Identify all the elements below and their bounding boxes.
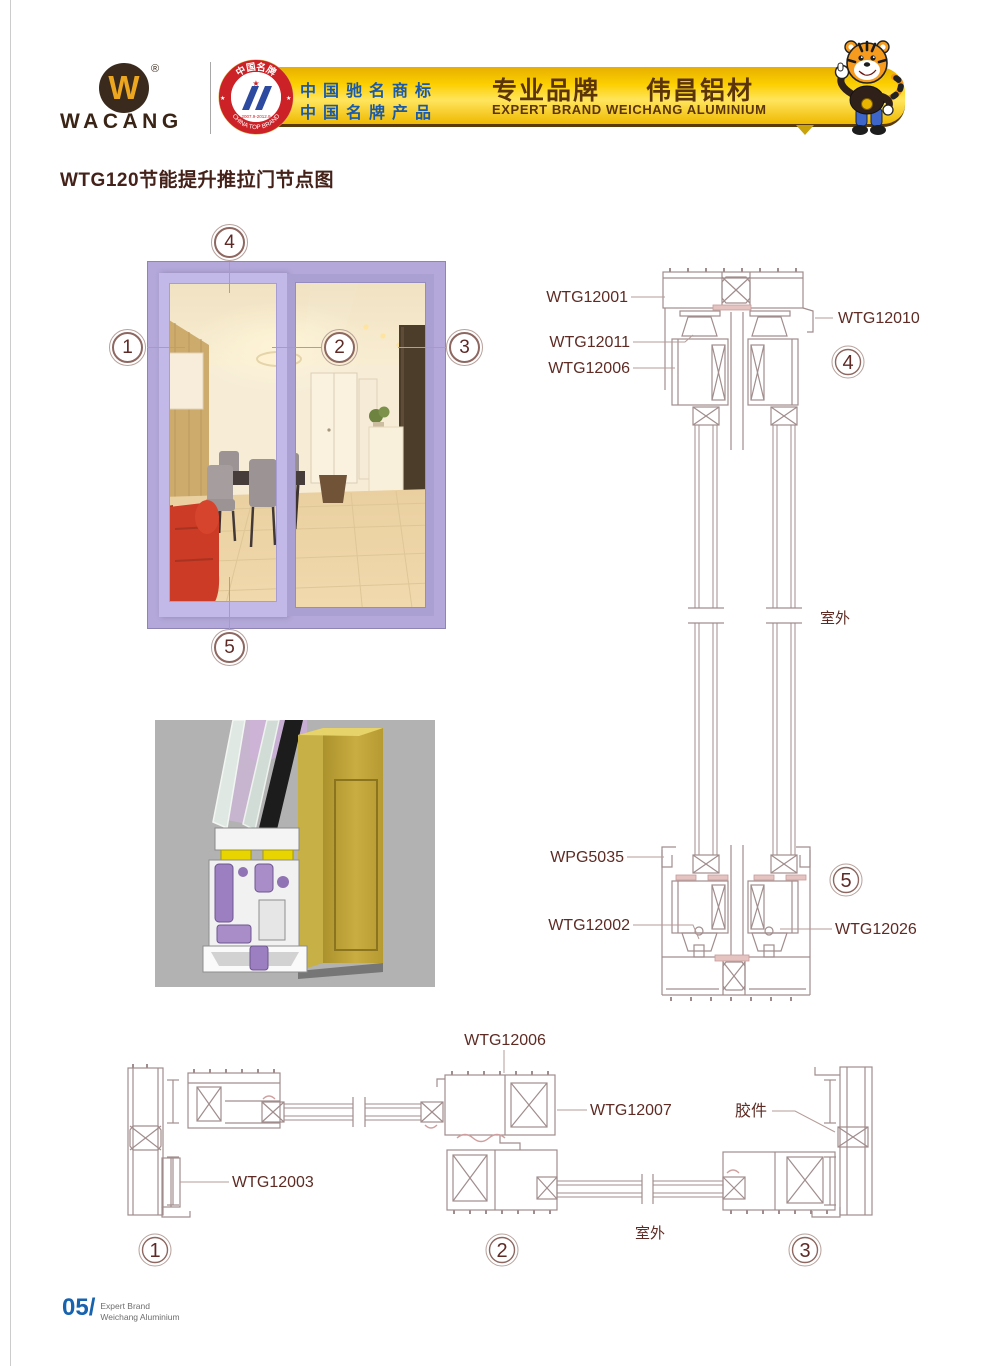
svg-text:1: 1 <box>149 1240 160 1262</box>
footer: 05/ Expert Brand Weichang Aluminium <box>62 1296 180 1323</box>
profile-3d-render <box>155 720 435 987</box>
label-wtg12006: WTG12006 <box>548 360 630 377</box>
door-right-sash <box>287 274 434 616</box>
outdoor-label-h: 室外 <box>635 1225 665 1242</box>
label-wtg12026: WTG12026 <box>835 921 917 938</box>
label-wpg5035: WPG5035 <box>550 849 624 866</box>
section-callout-5: 5 <box>830 864 862 896</box>
wacang-wordmark: WACANG <box>60 110 183 133</box>
badge-red-star-icon: ★ <box>252 79 259 88</box>
leader-line <box>272 347 321 348</box>
door-left-sash <box>159 273 287 617</box>
horizontal-section-drawing: WTG12003 WTG12006 WTG12007 胶件 室外 1 2 3 <box>75 1025 965 1270</box>
glass-lines <box>695 425 795 855</box>
tiger-medal <box>862 99 873 110</box>
leader-line <box>398 347 446 348</box>
label-wtg12011: WTG12011 <box>549 334 630 351</box>
svg-text:2: 2 <box>496 1240 507 1262</box>
logo-w-icon: W <box>108 69 140 106</box>
callout-1: 1 <box>112 332 143 363</box>
svg-text:3: 3 <box>799 1240 810 1262</box>
label-wtg12003: WTG12003 <box>232 1174 314 1191</box>
section-callout-1: 1 <box>139 1234 171 1266</box>
page-title: WTG120节能提升推拉门节点图 <box>60 165 334 192</box>
badge-years: 2007.9-2012.9 <box>241 114 271 119</box>
label-wtg12010: WTG12010 <box>838 310 920 327</box>
callout-4: 4 <box>214 227 245 258</box>
china-top-brand-badge: 中国名牌 CHINA TOP BRAND ★ ★ ★ 2007.9-2012.9 <box>217 58 295 136</box>
badge-star-right-icon: ★ <box>286 95 291 102</box>
tiger-mascot <box>828 36 906 138</box>
footer-brand-line2: Weichang Aluminium <box>100 1312 179 1323</box>
label-wtg12001: WTG12001 <box>546 289 628 306</box>
label-wtg12006-h: WTG12006 <box>464 1032 546 1049</box>
slogan-right: 伟昌铝材 <box>646 77 754 105</box>
banner-slogan-en: EXPERT BRAND WEICHANG ALUMINIUM <box>492 102 767 117</box>
leader-line <box>147 347 185 348</box>
callout-5: 5 <box>214 632 245 663</box>
label-wtg12002: WTG12002 <box>548 917 630 934</box>
header-divider <box>210 62 211 134</box>
callout-3: 3 <box>449 332 480 363</box>
section-callout-4: 4 <box>832 346 864 378</box>
svg-text:4: 4 <box>842 352 853 374</box>
leader-line <box>229 577 230 629</box>
registered-mark: ® <box>151 63 159 75</box>
banner-notch <box>796 125 814 135</box>
leader-line <box>229 262 230 293</box>
outdoor-label: 室外 <box>820 610 850 627</box>
svg-text:5: 5 <box>840 870 851 892</box>
label-jiaojian: 胶件 <box>735 1102 767 1120</box>
section-callout-2: 2 <box>486 1234 518 1266</box>
label-wtg12007: WTG12007 <box>590 1102 672 1119</box>
callout-2: 2 <box>324 332 355 363</box>
section-callout-3: 3 <box>789 1234 821 1266</box>
footer-brand-line1: Expert Brand <box>100 1301 179 1312</box>
wacang-logo: W ® WACANG <box>58 50 208 134</box>
vertical-section-drawing: WTG12001 WTG12010 WTG12011 WTG12006 WPG5… <box>545 255 965 1010</box>
banner-row2: 中国名牌产品 <box>300 99 438 123</box>
banner-row1: 中国驰名商标 <box>300 77 438 101</box>
page-edge-line <box>10 0 11 1366</box>
slogan-left: 专业品牌 <box>492 77 600 105</box>
badge-star-left-icon: ★ <box>220 95 225 102</box>
footer-page-number: 05/ <box>62 1296 95 1320</box>
